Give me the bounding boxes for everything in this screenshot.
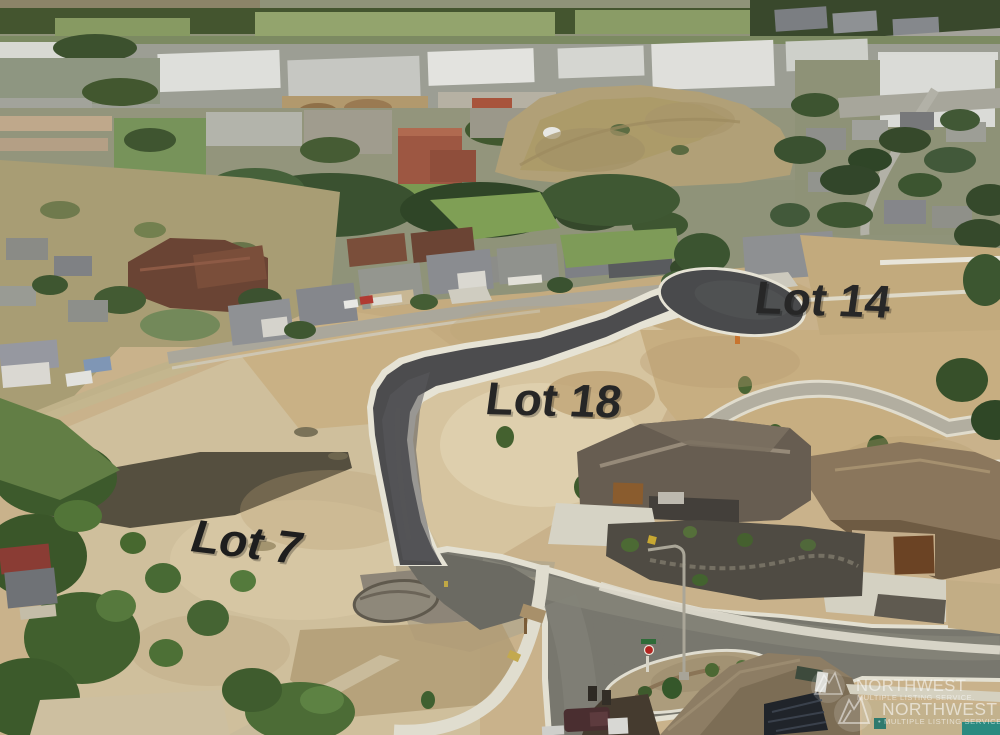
- svg-text:• MULTIPLE LISTING SERVICE.: • MULTIPLE LISTING SERVICE.: [878, 717, 1000, 726]
- svg-text:Lot 14: Lot 14: [752, 271, 895, 327]
- svg-text:Lot 18: Lot 18: [483, 372, 625, 427]
- svg-text:NORTHWEST: NORTHWEST: [882, 699, 997, 719]
